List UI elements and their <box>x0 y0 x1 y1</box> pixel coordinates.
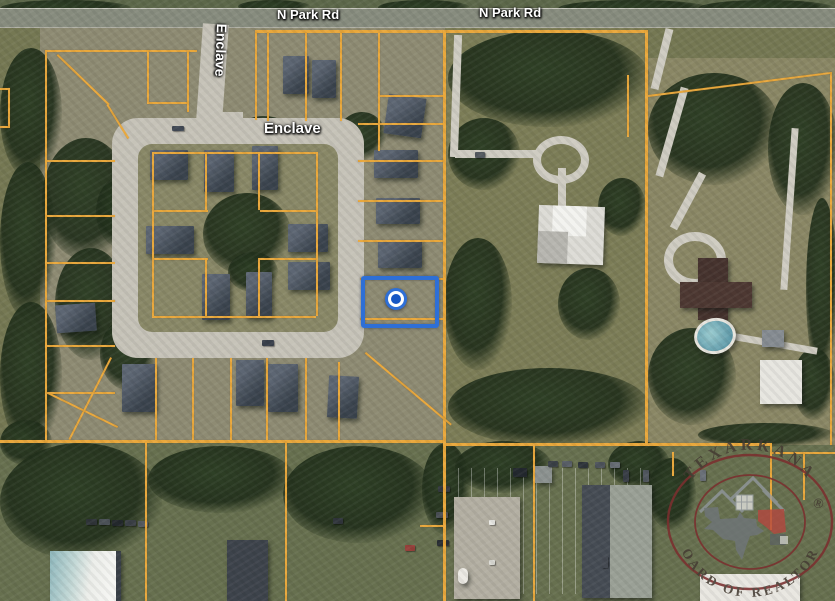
vehicle <box>112 520 123 526</box>
house-roof <box>288 262 330 290</box>
tree-canopy <box>444 238 512 370</box>
parcel-line <box>645 30 648 445</box>
house-roof <box>378 240 422 268</box>
parcel-line <box>192 358 194 440</box>
vehicle <box>643 470 649 482</box>
vehicle <box>610 462 620 468</box>
parcel-line <box>0 440 445 443</box>
parcel-line <box>378 33 380 151</box>
vehicle <box>333 518 343 524</box>
parcel-line <box>267 33 269 121</box>
parcel-line <box>230 358 232 440</box>
parcel-line <box>152 316 316 318</box>
parcel-line <box>340 33 342 121</box>
parcel-line <box>830 72 832 445</box>
parcel-line <box>145 442 147 601</box>
tree-canopy <box>448 30 650 127</box>
vehicle <box>475 152 485 158</box>
house-roof <box>374 150 418 178</box>
vehicle <box>602 556 608 568</box>
parcel-line <box>45 50 47 442</box>
vehicle <box>578 462 588 468</box>
vehicle <box>86 519 97 525</box>
street-label-enclave-loop: Enclave <box>264 120 321 137</box>
driveway <box>558 168 566 210</box>
parcel-line <box>152 152 154 316</box>
house-roof <box>327 375 359 419</box>
parcel-line <box>285 442 287 601</box>
house-roof <box>288 224 328 252</box>
tree-canopy <box>283 446 435 543</box>
parcel-line <box>260 210 316 212</box>
house-roof <box>204 150 234 192</box>
parcel-line <box>378 95 443 97</box>
commercial-building <box>50 551 121 601</box>
house-roof <box>236 360 264 406</box>
parcel-line <box>627 75 629 137</box>
vehicle <box>99 519 110 525</box>
tree-canopy <box>558 268 620 340</box>
property-marker[interactable] <box>385 288 407 310</box>
vehicle <box>262 340 274 346</box>
marker-white-ring <box>388 291 404 307</box>
parcel-line <box>258 258 260 316</box>
parcel-line <box>358 123 443 125</box>
commercial-building <box>227 540 268 601</box>
parcel-line <box>338 362 340 440</box>
commercial-building <box>535 466 552 483</box>
parcel-line <box>305 33 307 121</box>
house-roof <box>383 94 426 139</box>
parcel-line <box>205 152 207 210</box>
house-roof <box>312 60 336 98</box>
vehicle <box>595 462 605 468</box>
parcel-line <box>443 443 772 446</box>
parcel-line <box>316 152 318 316</box>
outbuilding <box>762 330 784 347</box>
parcel-line <box>45 345 115 347</box>
parcel-line <box>45 160 115 162</box>
house-roof-white <box>537 205 605 265</box>
tree-canopy <box>768 83 835 215</box>
tree-canopy <box>148 446 295 513</box>
tree-canopy <box>448 368 650 446</box>
parcel-line <box>205 258 207 316</box>
house-roof <box>268 364 298 412</box>
parcel-line <box>770 444 772 530</box>
parcel-line <box>358 160 443 162</box>
commercial-building <box>582 485 652 598</box>
marker-center-dot <box>391 294 401 304</box>
parcel-line <box>358 200 443 202</box>
tree-canopy <box>598 178 646 236</box>
parcel-line <box>45 392 115 394</box>
parcel-line <box>152 210 208 212</box>
vehicle <box>513 468 527 477</box>
road-label-n-park-rd-west: N Park Rd <box>277 7 339 22</box>
parcel-line <box>45 50 197 52</box>
parcel-line <box>45 262 115 264</box>
vehicle <box>623 470 629 482</box>
aerial-map-canvas[interactable]: N Park Rd N Park Rd Enclave Enclave TEXA… <box>0 0 835 601</box>
parcel-line <box>266 358 268 440</box>
vehicle <box>700 470 706 481</box>
parcel-line <box>155 358 157 440</box>
parcel-line <box>45 300 115 302</box>
tree-canopy <box>0 443 162 560</box>
parcel-line <box>260 258 316 260</box>
parcel-line <box>152 152 316 154</box>
house-roof <box>122 364 156 412</box>
vehicle <box>562 461 572 467</box>
parcel-line <box>358 240 443 242</box>
parcel-line <box>305 358 307 440</box>
vehicle <box>489 560 495 565</box>
parcel-line <box>152 258 208 260</box>
house-roof <box>55 303 97 334</box>
vehicle <box>436 512 448 518</box>
vehicle <box>125 520 136 526</box>
parcel-line <box>533 444 535 601</box>
parcel-line <box>255 33 257 120</box>
parcel-line <box>45 215 115 217</box>
n-park-rd-road <box>0 8 835 28</box>
parcel-line <box>672 452 674 476</box>
road-label-n-park-rd-east: N Park Rd <box>479 5 541 20</box>
parcel-line <box>187 50 189 112</box>
parcel-line <box>147 50 149 104</box>
storage-tank <box>458 568 468 584</box>
vehicle <box>489 520 495 525</box>
parcel-line <box>147 102 187 104</box>
parcel-line <box>443 30 446 601</box>
parcel-line <box>8 88 10 128</box>
driveway <box>455 150 541 158</box>
vehicle <box>172 126 184 131</box>
commercial-building <box>700 574 800 601</box>
shed-roof <box>760 360 802 404</box>
parcel-line <box>255 30 647 33</box>
street-label-enclave-vertical: Enclave <box>212 23 230 76</box>
house-roof-brown <box>680 282 752 308</box>
vehicle <box>405 545 415 551</box>
roof-section <box>537 231 568 264</box>
house-roof <box>150 150 188 180</box>
parcel-line <box>258 152 260 210</box>
vehicle <box>548 461 558 467</box>
parcel-line <box>803 452 805 500</box>
enclave-road-connector <box>207 112 243 132</box>
